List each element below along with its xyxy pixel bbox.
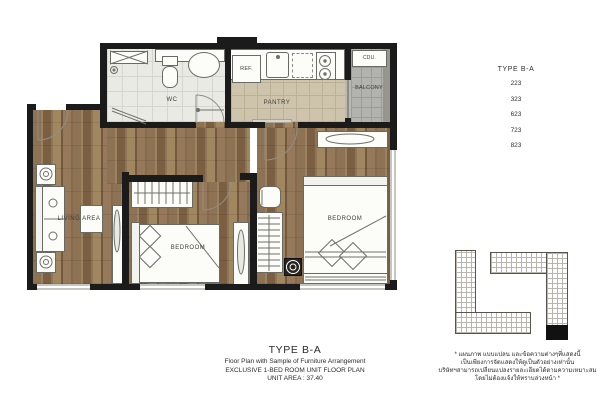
disclaimer-block: * แผนภาพ แบบแปลน และข้อความต่างๆที่แสดงน… bbox=[425, 351, 600, 383]
room-label-balcony: BALCONY bbox=[346, 84, 392, 92]
room-label-pantry: PANTRY bbox=[252, 99, 302, 107]
disclaimer-line: * แผนภาพ แบบแปลน และข้อความต่างๆที่แสดงน… bbox=[425, 351, 600, 359]
unit-list: TYPE B-A 223 323 623 723 823 bbox=[482, 66, 550, 158]
caption-line3: UNIT AREA : 37.40 bbox=[195, 375, 395, 382]
disclaimer-line: โดยไม่ต้องแจ้งให้ทราบล่วงหน้า * bbox=[425, 375, 600, 383]
desk-chair bbox=[259, 186, 281, 208]
wall-wc-left bbox=[100, 43, 107, 128]
wall-top-notch bbox=[217, 37, 257, 43]
tv-console-mid bbox=[233, 222, 249, 285]
dresser bbox=[317, 131, 388, 148]
disclaimer-line: เป็นเพียงการจัดแสดงให้ดูเป็นตัวอย่างเท่า… bbox=[425, 359, 600, 367]
keyplan-wing-bottom bbox=[455, 312, 531, 334]
wall-entry-right bbox=[66, 104, 107, 110]
caption-subtitle: Floor Plan with Sample of Furniture Arra… bbox=[195, 358, 395, 365]
keyplan-unit-marker bbox=[546, 325, 568, 340]
floor-plan-page: WC PANTRY BALCONY CDU. REF. LIVING AREA … bbox=[0, 0, 600, 410]
wall-left bbox=[27, 104, 33, 290]
counter-space bbox=[292, 53, 313, 78]
room-label-bedroom-mid: BEDROOM bbox=[158, 244, 218, 252]
wardrobe-mid bbox=[131, 178, 193, 208]
unit-number: 223 bbox=[482, 80, 550, 87]
wash-basin bbox=[188, 52, 220, 78]
kitchen-sink bbox=[266, 52, 289, 78]
window-bedroom-mid bbox=[140, 284, 205, 290]
unit-number: 823 bbox=[482, 142, 550, 149]
toilet-bowl bbox=[162, 66, 178, 88]
room-label-living: LIVING AREA bbox=[40, 215, 118, 223]
wall-stub-h bbox=[240, 173, 257, 180]
wall-bottom-3 bbox=[205, 284, 300, 290]
window-bedroom-right bbox=[300, 284, 385, 290]
building-key-plan bbox=[448, 244, 598, 348]
stove bbox=[316, 52, 336, 80]
unit-number: 623 bbox=[482, 111, 550, 118]
room-label-wc: WC bbox=[160, 96, 184, 104]
caption-title: TYPE B-A bbox=[195, 344, 395, 356]
caption-line2: EXCLUSIVE 1-BED ROOM UNIT FLOOR PLAN bbox=[195, 367, 395, 374]
shaft-box bbox=[110, 51, 148, 64]
unit-number: 723 bbox=[482, 127, 550, 134]
wall-strip-bottom-a bbox=[225, 122, 265, 128]
unit-list-heading: TYPE B-A bbox=[482, 66, 550, 73]
bed-right-foot bbox=[303, 273, 388, 284]
wall-living-bed bbox=[122, 172, 129, 284]
room-label-ref: REF. bbox=[232, 65, 261, 73]
disclaimer-line: บริษัทฯสามารถเปลี่ยนแปลงรายละเอียดได้ตาม… bbox=[425, 367, 600, 375]
room-label-cdu: CDU. bbox=[352, 54, 387, 62]
wardrobe-right bbox=[255, 212, 283, 273]
window-right bbox=[390, 150, 396, 280]
wall-right-bottom bbox=[390, 280, 397, 290]
wall-pantry-balcony-bottom bbox=[345, 118, 351, 128]
wall-wc-pantry bbox=[225, 49, 231, 122]
wall-bed-mid-top bbox=[129, 175, 203, 182]
room-label-bedroom-right: BEDROOM bbox=[315, 215, 375, 223]
caption-block: TYPE B-A Floor Plan with Sample of Furni… bbox=[195, 344, 395, 384]
wall-between-bedrooms bbox=[250, 180, 257, 284]
plant-stand-top bbox=[36, 164, 56, 185]
unit-number: 323 bbox=[482, 96, 550, 103]
plant-stand-bottom bbox=[36, 252, 56, 273]
wall-bottom-1 bbox=[27, 284, 37, 290]
wall-bottom-2 bbox=[90, 284, 140, 290]
wall-pantry-balcony-top bbox=[345, 43, 351, 80]
wall-strip-bottom-wc bbox=[100, 122, 196, 128]
door-sill-wc bbox=[196, 122, 225, 128]
fan-table bbox=[284, 258, 302, 276]
window-living bbox=[37, 284, 90, 290]
wall-right-top bbox=[390, 128, 397, 150]
toilet-tank bbox=[162, 56, 178, 66]
